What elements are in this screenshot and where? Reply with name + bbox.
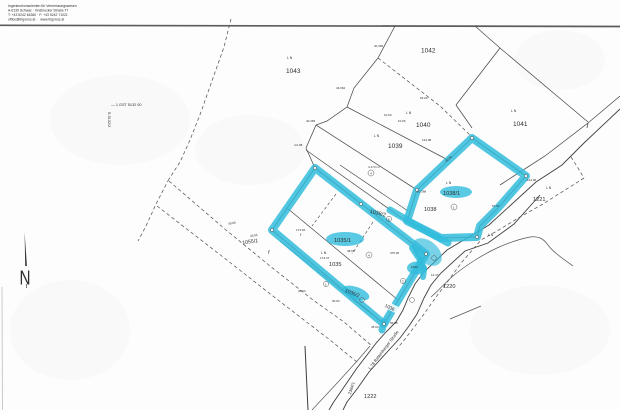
svg-text:— 1 GST 5132 00: — 1 GST 5132 00	[111, 103, 142, 107]
svg-text:L N: L N	[488, 233, 494, 237]
svg-text:375.06: 375.06	[390, 251, 400, 255]
svg-text:1042: 1042	[421, 48, 436, 55]
svg-text:T: +43 5242 64360 · F: +43 524: T: +43 5242 64360 · F: +43 5242 71021	[8, 13, 68, 17]
svg-text:45.60: 45.60	[371, 325, 379, 329]
svg-text:1220: 1220	[443, 284, 455, 290]
svg-text:L N: L N	[546, 186, 552, 190]
svg-text:00.94: 00.94	[332, 299, 340, 303]
svg-text:L N: L N	[446, 181, 452, 185]
svg-text:1039: 1039	[388, 143, 403, 150]
svg-text:4.0.98: 4.0.98	[294, 143, 303, 147]
svg-text:L N: L N	[287, 56, 293, 60]
svg-text:1035/1: 1035/1	[334, 238, 351, 244]
svg-text:1221: 1221	[533, 197, 545, 203]
svg-text:1039: 1039	[411, 265, 418, 269]
svg-text:B 5132/2: B 5132/2	[107, 112, 111, 127]
svg-text:124.98: 124.98	[422, 138, 432, 142]
svg-text:4.170 m²: 4.170 m²	[368, 165, 380, 169]
svg-text:46.04: 46.04	[298, 289, 306, 293]
svg-text:10.368: 10.368	[417, 190, 427, 194]
svg-text:1043: 1043	[286, 68, 301, 75]
svg-text:A-6130 Schwaz · Innsbrucker St: A-6130 Schwaz · Innsbrucker Straße 77	[8, 9, 68, 13]
svg-text:12.47: 12.47	[431, 273, 439, 277]
svg-text:10.63: 10.63	[384, 113, 392, 117]
svg-text:40.383: 40.383	[306, 119, 316, 123]
svg-text:office@trigonos.at · www.tri: office@trigonos.at · www.trigonos.at	[8, 18, 64, 22]
svg-text:L N: L N	[406, 111, 412, 115]
svg-text:173.47: 173.47	[320, 256, 330, 260]
svg-text:1038/1: 1038/1	[443, 191, 460, 197]
svg-text:59.08: 59.08	[390, 321, 398, 325]
svg-text:Ingenieurkonsulenten für Verme: Ingenieurkonsulenten für Vermessungswese…	[8, 4, 77, 8]
svg-text:1222: 1222	[364, 394, 376, 400]
svg-text:1038: 1038	[424, 207, 436, 213]
svg-text:1040: 1040	[416, 122, 431, 129]
svg-text:1035: 1035	[329, 262, 341, 268]
svg-text:10.06: 10.06	[398, 119, 406, 123]
svg-text:L N: L N	[374, 134, 380, 138]
svg-text:L N: L N	[511, 109, 517, 113]
svg-text:40.382: 40.382	[374, 44, 384, 48]
svg-text:173.62: 173.62	[296, 228, 306, 232]
svg-text:57.97: 57.97	[492, 204, 500, 208]
svg-text:1041: 1041	[513, 121, 528, 128]
svg-text:48.69: 48.69	[347, 249, 355, 253]
svg-text:L N: L N	[321, 251, 327, 255]
svg-text:N: N	[20, 268, 31, 290]
svg-text:63.00: 63.00	[420, 96, 428, 100]
svg-text:124.96: 124.96	[527, 178, 537, 182]
svg-text:43.062: 43.062	[336, 86, 346, 90]
